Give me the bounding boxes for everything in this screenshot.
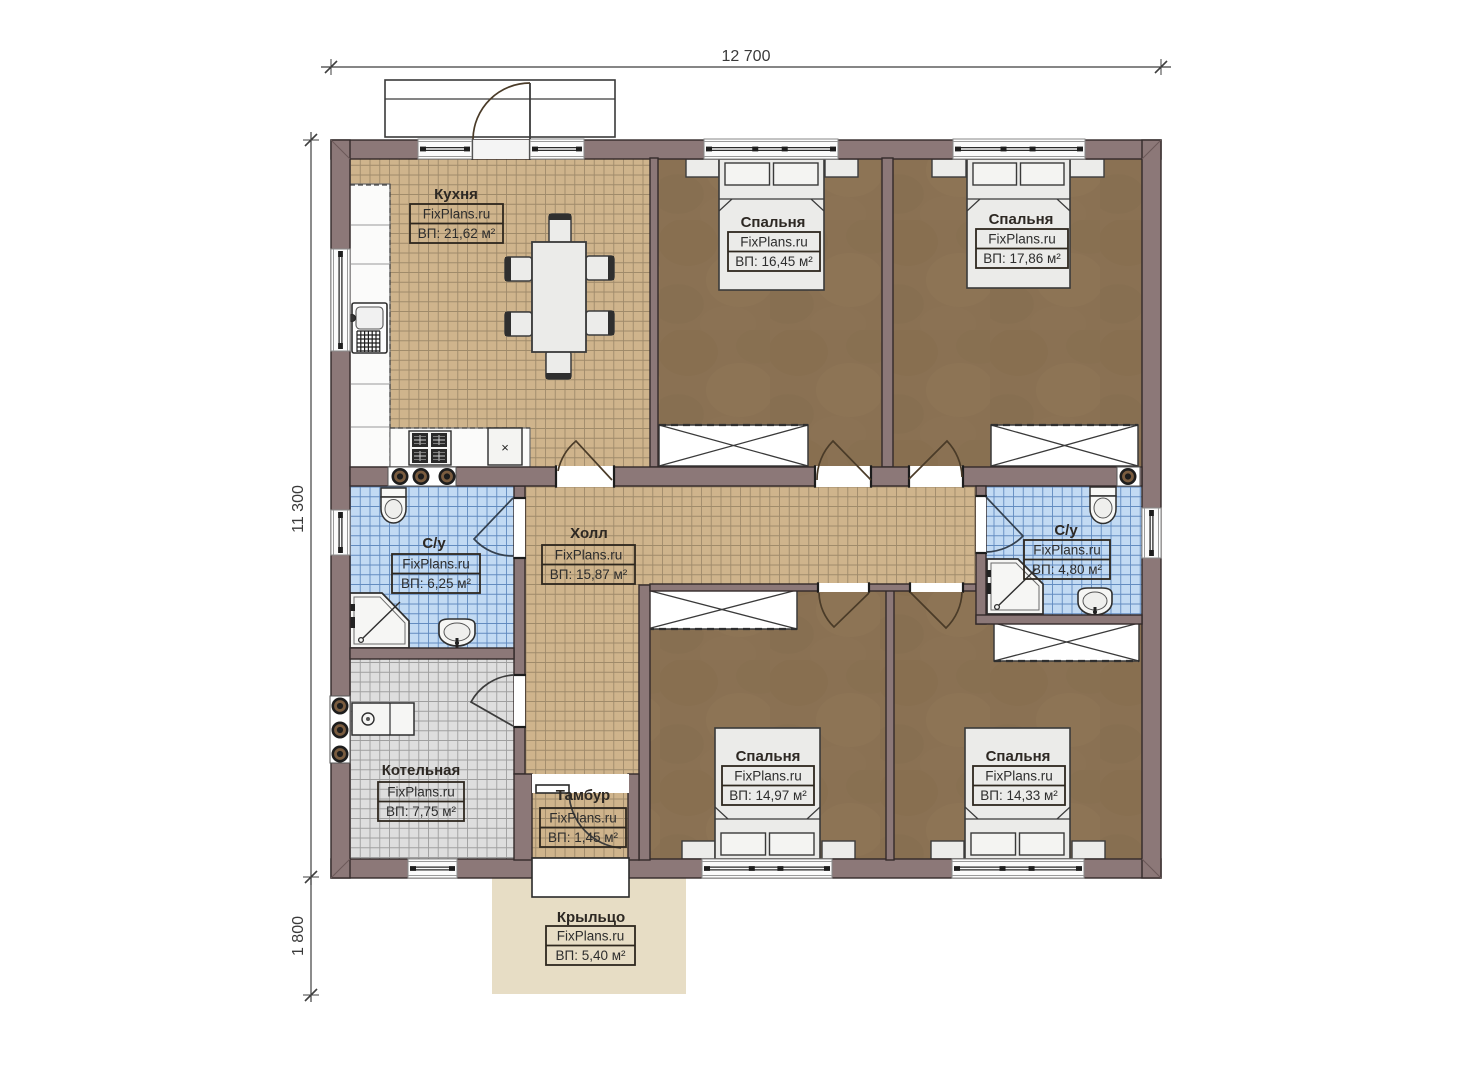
svg-text:ВП: 6,25 м²: ВП: 6,25 м² xyxy=(401,576,472,591)
svg-text:FixPlans.ru: FixPlans.ru xyxy=(734,769,802,784)
svg-text:ВП: 5,40 м²: ВП: 5,40 м² xyxy=(555,948,626,963)
svg-text:Спальня: Спальня xyxy=(736,748,801,765)
svg-text:FixPlans.ru: FixPlans.ru xyxy=(1033,543,1101,558)
svg-text:FixPlans.ru: FixPlans.ru xyxy=(557,929,625,944)
svg-text:Котельная: Котельная xyxy=(382,762,461,779)
svg-text:11 300: 11 300 xyxy=(290,485,307,533)
svg-text:FixPlans.ru: FixPlans.ru xyxy=(549,811,617,826)
svg-text:FixPlans.ru: FixPlans.ru xyxy=(740,235,808,250)
svg-text:Холл: Холл xyxy=(570,525,608,542)
svg-text:ВП: 4,80 м²: ВП: 4,80 м² xyxy=(1032,562,1103,577)
svg-text:ВП: 1,45 м²: ВП: 1,45 м² xyxy=(548,830,619,845)
svg-text:FixPlans.ru: FixPlans.ru xyxy=(423,207,491,222)
svg-text:ВП: 14,33 м²: ВП: 14,33 м² xyxy=(980,788,1058,803)
svg-text:ВП: 21,62 м²: ВП: 21,62 м² xyxy=(418,226,496,241)
svg-text:FixPlans.ru: FixPlans.ru xyxy=(387,785,455,800)
svg-text:1 800: 1 800 xyxy=(290,916,307,956)
svg-text:ВП: 14,97 м²: ВП: 14,97 м² xyxy=(729,788,807,803)
svg-text:ВП: 16,45 м²: ВП: 16,45 м² xyxy=(735,254,813,269)
svg-text:ВП: 15,87 м²: ВП: 15,87 м² xyxy=(550,567,628,582)
svg-text:FixPlans.ru: FixPlans.ru xyxy=(402,557,470,572)
svg-text:С/у: С/у xyxy=(422,535,446,552)
svg-text:12 700: 12 700 xyxy=(722,48,771,65)
svg-text:ВП: 7,75 м²: ВП: 7,75 м² xyxy=(386,804,457,819)
svg-text:Тамбур: Тамбур xyxy=(556,787,610,804)
svg-text:FixPlans.ru: FixPlans.ru xyxy=(555,548,623,563)
svg-text:Кухня: Кухня xyxy=(434,186,478,203)
svg-text:Спальня: Спальня xyxy=(989,211,1054,228)
svg-text:Спальня: Спальня xyxy=(986,748,1051,765)
svg-text:Спальня: Спальня xyxy=(741,214,806,231)
svg-text:FixPlans.ru: FixPlans.ru xyxy=(988,232,1056,247)
svg-text:ВП: 17,86 м²: ВП: 17,86 м² xyxy=(983,251,1061,266)
svg-text:×: × xyxy=(501,440,509,455)
svg-text:С/у: С/у xyxy=(1054,522,1078,539)
svg-text:Крыльцо: Крыльцо xyxy=(557,909,625,926)
svg-text:FixPlans.ru: FixPlans.ru xyxy=(985,769,1053,784)
